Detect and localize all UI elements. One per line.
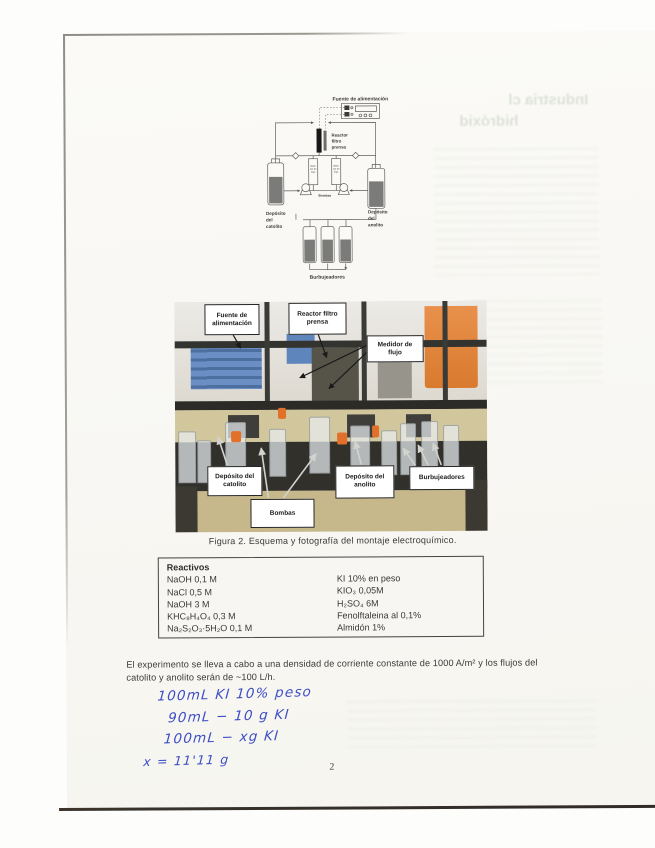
svg-text:del: del: [368, 216, 375, 221]
pump-symbol: [338, 184, 349, 195]
arrow-medidor: [329, 352, 367, 388]
reagent-item: KI 10% en peso: [337, 572, 421, 585]
label-text: Fuente de: [217, 312, 248, 320]
label-text: alimentación: [212, 320, 252, 328]
reagents-left-column: Reactivos NaOH 0,1 M NaCl 0,5 M NaOH 3 M…: [167, 561, 253, 635]
schematic-pumps-label: Bombas: [319, 194, 332, 198]
photo-label-anolito: Depósito del anolito: [335, 465, 394, 498]
handwritten-line: 100mL − xg KI: [163, 728, 280, 747]
handwritten-notes: 100mL KI 10% peso 90mL − 10 g KI 100mL −…: [135, 678, 438, 797]
label-text: Bombas: [270, 509, 296, 517]
pump-symbol: [300, 184, 311, 195]
schematic-bubblers-label: Burbujeadores: [310, 275, 346, 281]
arrow-anolito: [355, 441, 361, 464]
page-number: 2: [67, 760, 597, 774]
return-line: [276, 155, 376, 156]
filter-press-reactor-symbol: [316, 129, 326, 153]
schematic-power-label: Fuente de alimentación: [333, 96, 389, 102]
svg-text:flujo: flujo: [311, 172, 316, 174]
photo-arrows: [174, 301, 487, 533]
reagents-table: Reactivos NaOH 0,1 M NaCl 0,5 M NaOH 3 M…: [158, 556, 484, 639]
svg-text:catolito: catolito: [266, 224, 283, 229]
svg-text:Depósito: Depósito: [266, 211, 286, 216]
document-page: Industria cl hidróxid: [63, 31, 655, 811]
flowmeter-drain: [313, 185, 336, 191]
handwritten-line: 100mL KI 10% peso: [157, 684, 313, 705]
photo-label-fuente: Fuente de alimentación: [204, 304, 259, 335]
label-text: Depósito del: [345, 474, 384, 482]
arrow-burbujeador: [418, 445, 428, 465]
photo-label-burbujeadores: Burbujeadores: [409, 466, 474, 490]
schematic-catholyte-label: Depósito del catolito: [266, 211, 286, 229]
photo-label-reactor: Reactor filtro prensa: [288, 303, 346, 335]
label-text: anolito: [354, 482, 375, 490]
bleedthrough-texture: [434, 147, 600, 276]
svg-text:del: del: [266, 217, 273, 222]
svg-text:filtro: filtro: [332, 139, 342, 144]
bubbler-pointer: [310, 264, 346, 270]
arrow-catolito: [218, 437, 227, 465]
svg-text:dor de: dor de: [310, 168, 317, 171]
reagent-item: NaCl 0,5 M: [167, 586, 252, 599]
page-edge-bottom: [59, 805, 655, 811]
reagent-item: H₂SO₄ 6M: [337, 597, 421, 610]
flowmeter-feed: [313, 156, 336, 159]
arrow-reactor: [318, 333, 327, 358]
svg-text:anolito: anolito: [368, 222, 383, 227]
scan-background: Industria cl hidróxid: [0, 0, 655, 848]
label-text: Medidor de: [378, 341, 413, 349]
reagent-item: NaOH 0,1 M: [167, 573, 252, 586]
bubbler-symbol: [339, 226, 352, 262]
reagent-item: Na₂S₂O₃·5H₂O 0,1 M: [167, 623, 252, 636]
reagent-item: KIO₃ 0,05M: [337, 584, 421, 597]
svg-text:Medi-: Medi-: [333, 166, 339, 168]
bubbler-inlet: [310, 220, 346, 227]
valve-symbol: [352, 152, 358, 158]
bubbler-feed-line: [303, 208, 376, 219]
reagent-item: KHC₈H₄O₄ 0,3 M: [167, 610, 252, 623]
arrow-burbujeador: [403, 448, 415, 465]
lab-photo: Fuente de alimentación Reactor filtro pr…: [174, 301, 487, 533]
arrow-bombas: [283, 454, 316, 498]
reagents-title: Reactivos: [167, 561, 252, 574]
svg-text:Reactor: Reactor: [332, 133, 349, 138]
power-supply-symbol: [341, 103, 379, 118]
reagent-item: Almidón 1%: [337, 621, 421, 634]
svg-text:Medi-: Medi-: [310, 166, 316, 168]
catholyte-tank-symbol: [268, 159, 284, 205]
arrow-burbujeador: [433, 443, 441, 465]
label-text: prensa: [307, 319, 328, 327]
label-text: Depósito del: [215, 473, 254, 481]
valve-symbol: [292, 153, 298, 159]
label-text: flujo: [388, 349, 402, 357]
svg-text:prensa: prensa: [332, 145, 347, 150]
reagent-item: NaOH 3 M: [167, 598, 252, 611]
reagent-item: Fenolftaleina al 0,1%: [337, 609, 421, 622]
arrow-bombas: [261, 448, 268, 498]
page-edge-left: [63, 34, 68, 649]
photo-label-bombas: Bombas: [250, 499, 315, 529]
svg-text:dor de: dor de: [333, 168, 340, 171]
label-text: catolito: [223, 481, 246, 489]
photo-label-medidor: Medidor de flujo: [366, 335, 423, 363]
power-lead: [319, 108, 344, 129]
label-text: Reactor filtro: [297, 311, 337, 319]
photo-label-catolito: Depósito del catolito: [207, 466, 262, 496]
svg-text:Depósito: Depósito: [368, 209, 388, 214]
bubbler-symbol: [303, 227, 316, 263]
page-edge-top: [63, 32, 408, 36]
handwritten-line: 90mL − 10 g KI: [167, 707, 290, 727]
schematic-reactor-label: Reactor filtro prensa: [332, 133, 349, 150]
reagents-right-column: KI 10% en peso KIO₃ 0,05M H₂SO₄ 6M Fenol…: [337, 572, 421, 634]
figure-caption: Figura 2. Esquema y fotografía del monta…: [118, 534, 548, 546]
schematic-figure: Fuente de alimentación Reactor filtro pr…: [255, 86, 426, 284]
svg-text:flujo: flujo: [334, 172, 339, 174]
label-text: Burbujeadores: [419, 474, 465, 482]
anolyte-tank-symbol: [368, 164, 385, 208]
bubbler-symbol: [321, 227, 334, 263]
schematic-anolyte-label: Depósito del anolito: [368, 209, 388, 227]
